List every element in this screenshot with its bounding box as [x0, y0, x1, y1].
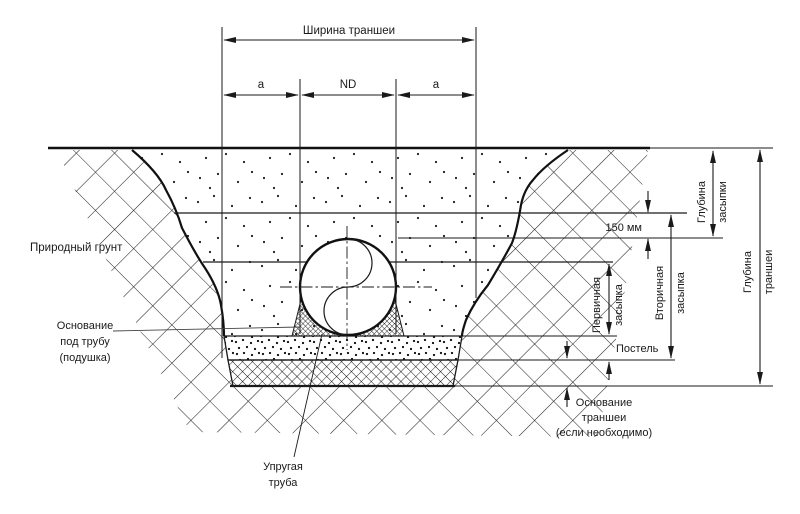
nd-label: ND: [340, 79, 357, 91]
svg-text:засыпка: засыпка: [613, 283, 625, 326]
svg-text:Вторичная: Вторичная: [654, 266, 666, 320]
flexible-pipe-label: Упругая труба: [263, 461, 303, 489]
bedding-label: Постель: [616, 343, 659, 355]
trench-depth-label: Глубина траншеи: [742, 250, 775, 294]
svg-text:траншеи: траншеи: [763, 250, 775, 294]
svg-text:Основание: Основание: [57, 320, 113, 332]
natural-soil-label: Природный грунт: [30, 242, 123, 254]
svg-text:траншеи: траншеи: [582, 412, 626, 424]
svg-text:Глубина: Глубина: [696, 180, 708, 223]
a-left-label: a: [258, 79, 265, 91]
svg-text:(если необходимо): (если необходимо): [556, 427, 652, 439]
base-layer: [228, 360, 458, 386]
a-right-label: a: [433, 79, 440, 91]
svg-text:Первичная: Первичная: [591, 277, 603, 333]
dim-150mm-label: 150 мм: [605, 222, 642, 234]
trench-diagram: Ширина траншеи a ND a Природный грунт Ос…: [0, 0, 800, 514]
svg-text:Основание: Основание: [576, 397, 632, 409]
width-dimension-label: Ширина траншеи: [303, 25, 395, 37]
svg-text:Упругая: Упругая: [263, 461, 303, 473]
pipe-base-label: Основание под трубу (подушка): [57, 320, 113, 364]
bedding-layer: [224, 336, 462, 360]
svg-text:труба: труба: [269, 477, 299, 489]
svg-text:под трубу: под трубу: [60, 336, 110, 348]
svg-text:(подушка): (подушка): [59, 352, 110, 364]
svg-text:засыпки: засыпки: [717, 181, 729, 222]
svg-text:засыпка: засыпка: [675, 271, 687, 314]
svg-text:Глубина: Глубина: [742, 250, 754, 293]
trench-cross-section-page: Ширина траншеи a ND a Природный грунт Ос…: [0, 0, 800, 514]
